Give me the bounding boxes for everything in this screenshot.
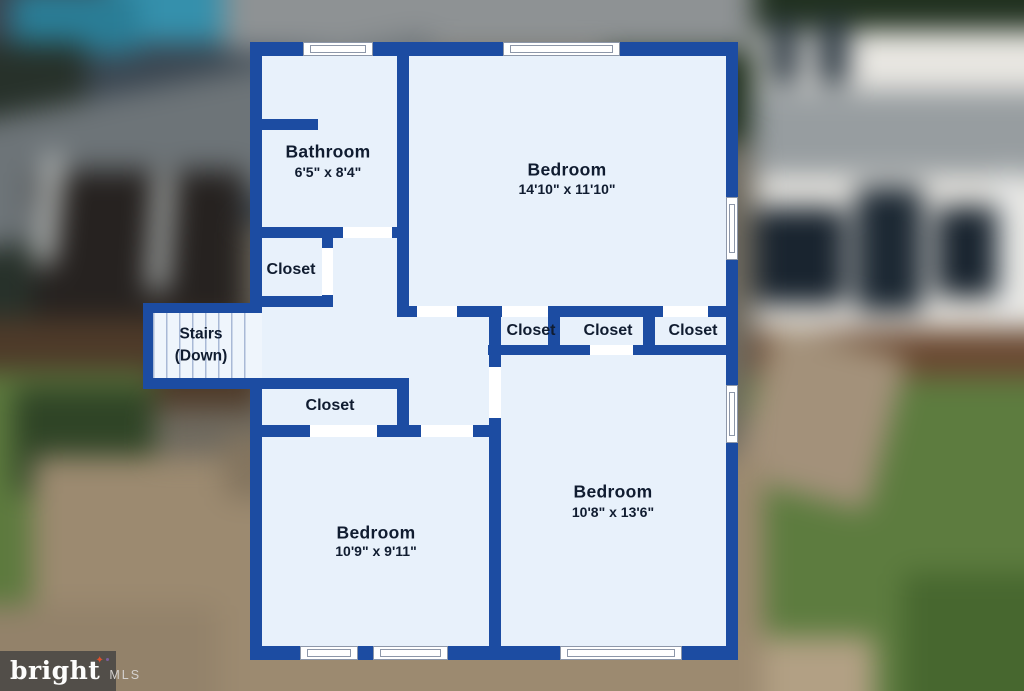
window <box>560 646 682 660</box>
window <box>726 385 738 443</box>
room-label-closet-1: Closet <box>507 323 556 339</box>
room-label-bedroom-right: Bedroom <box>574 483 653 501</box>
window <box>726 197 738 260</box>
bg-gable-window-1 <box>770 17 800 85</box>
door-opening <box>343 227 392 238</box>
room-label-bathroom: Bathroom <box>285 143 370 161</box>
star-icon: ✦ <box>95 656 104 666</box>
brightmls-watermark: bright ✦ MLS <box>0 651 116 691</box>
room-dims-bathroom: 6'5" x 8'4" <box>295 165 362 179</box>
wall <box>643 306 655 355</box>
window <box>303 42 373 56</box>
door-opening <box>310 425 377 437</box>
window <box>503 42 620 56</box>
door-opening <box>322 248 333 295</box>
stairs-label-line1: Stairs <box>179 326 222 342</box>
door-opening <box>489 367 501 418</box>
room-dims-bedroom-top: 14'10" x 11'10" <box>518 182 615 196</box>
screenshot: Bathroom 6'5" x 8'4" Bedroom 14'10" x 11… <box>0 0 1024 691</box>
door-opening <box>590 345 633 355</box>
wall <box>489 306 501 367</box>
bg-porch-door <box>855 187 923 312</box>
stairs-label-line2: (Down) <box>175 348 228 364</box>
room-label-closet-2: Closet <box>584 323 633 339</box>
stair-treads <box>153 313 250 378</box>
wall <box>143 303 153 388</box>
room-label-bedroom-top: Bedroom <box>528 161 607 179</box>
brightmls-logo-suffix: MLS <box>109 655 141 691</box>
door-opening <box>502 306 548 317</box>
brightmls-logo-text: bright ✦ <box>10 651 100 691</box>
stair-opening <box>250 313 262 378</box>
room-dims-bedroom-right: 10'8" x 13'6" <box>572 505 654 519</box>
wall <box>250 119 318 130</box>
door-opening <box>663 306 708 317</box>
room-dims-bedroom-left: 10'9" x 9'11" <box>335 544 416 558</box>
bg-gable-window-2 <box>817 17 849 85</box>
wall <box>143 303 262 313</box>
door-opening <box>421 425 473 437</box>
bg-grass-corner-right <box>902 573 1024 691</box>
window <box>373 646 448 660</box>
room-label-closet-left: Closet <box>267 262 316 278</box>
room-label-closet-3: Closet <box>669 323 718 339</box>
window <box>300 646 358 660</box>
wall <box>397 42 409 317</box>
room-label-closet-mid: Closet <box>306 398 355 414</box>
bg-roof-band-right <box>752 91 1024 176</box>
bg-porch-window-1 <box>756 207 846 305</box>
wall <box>143 378 409 389</box>
wall <box>250 296 333 307</box>
wall <box>489 418 501 660</box>
room-label-bedroom-left: Bedroom <box>337 524 416 542</box>
door-opening <box>417 306 457 317</box>
